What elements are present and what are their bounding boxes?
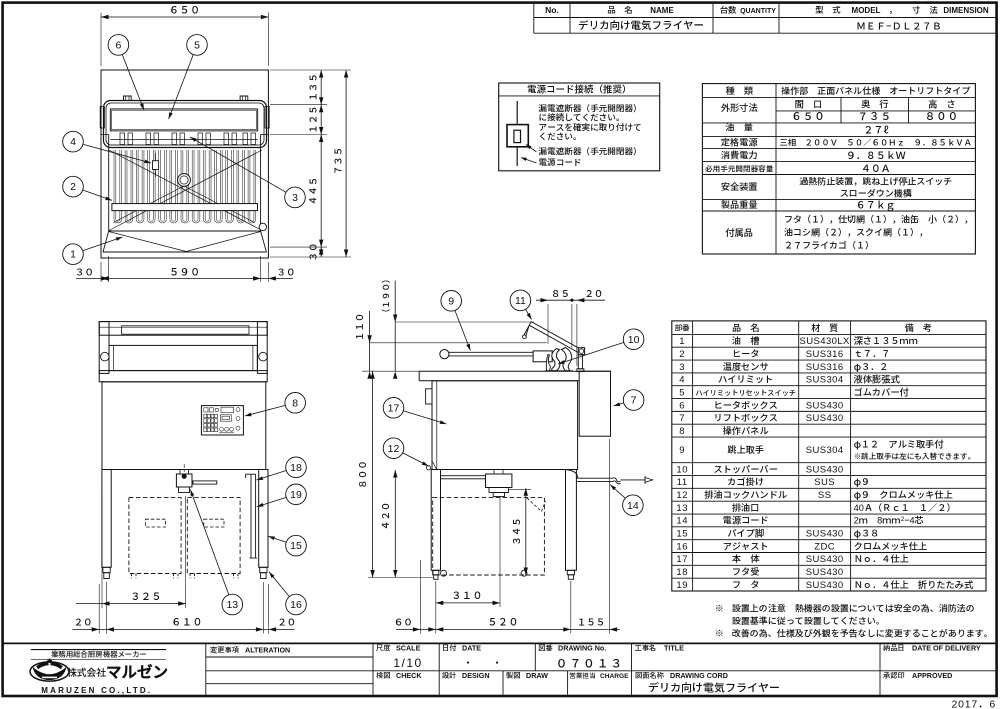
svg-text:※: ※ (715, 602, 724, 615)
svg-text:２０: ２０ (584, 286, 603, 300)
svg-text:DATE: DATE (462, 644, 481, 654)
svg-text:定格電源: 定格電源 (721, 134, 759, 148)
svg-text:DATE OF DELIVERY: DATE OF DELIVERY (912, 644, 981, 654)
svg-text:NAME: NAME (650, 5, 674, 16)
svg-text:検図: 検図 (376, 671, 390, 681)
svg-text:マルゼン: マルゼン (106, 661, 168, 683)
svg-text:６５０: ６５０ (791, 109, 826, 124)
svg-text:SCALE: SCALE (396, 644, 421, 654)
svg-text:13: 13 (226, 597, 238, 612)
svg-text:4: 4 (70, 134, 76, 149)
svg-text:16: 16 (290, 597, 302, 612)
svg-text:・: ・ (492, 656, 501, 669)
svg-text:尺度: 尺度 (376, 644, 390, 654)
svg-text:２０: ２０ (73, 615, 92, 629)
svg-text:寸 法: 寸 法 (912, 4, 938, 16)
svg-text:４２０: ４２０ (378, 502, 392, 531)
svg-text:備 考: 備 考 (905, 321, 932, 334)
svg-text:7: 7 (631, 393, 637, 408)
svg-text:18: 18 (290, 460, 302, 475)
svg-text:品 名: 品 名 (732, 321, 759, 334)
svg-text:12: 12 (388, 441, 400, 456)
svg-text:４４５: ４４５ (306, 177, 320, 206)
svg-text:1: 1 (70, 247, 76, 262)
svg-text:TITLE: TITLE (664, 644, 684, 654)
svg-text:8: 8 (679, 423, 685, 437)
svg-text:部番: 部番 (675, 323, 691, 334)
svg-text:17: 17 (388, 400, 400, 415)
svg-text:CHARGE: CHARGE (600, 670, 629, 680)
svg-text:11: 11 (515, 293, 526, 308)
svg-text:変更事項: 変更事項 (210, 645, 240, 655)
svg-text:８５: ８５ (551, 286, 570, 300)
svg-text:油コシ網（２），スクイ網（１），: 油コシ網（２），スクイ網（１）， (784, 225, 928, 238)
svg-text:5: 5 (194, 38, 200, 53)
svg-text:（１９０）: （１９０） (380, 275, 392, 318)
svg-text:デリカ向け電気フライヤー: デリカ向け電気フライヤー (578, 18, 704, 33)
svg-text:15: 15 (290, 538, 302, 553)
svg-text:２７フライカゴ（１）: ２７フライカゴ（１） (784, 238, 874, 251)
svg-text:６１０: ６１０ (171, 614, 203, 629)
svg-text:５２０: ５２０ (487, 614, 519, 629)
svg-text:付属品: 付属品 (725, 225, 753, 239)
svg-text:営業担当: 営業担当 (569, 670, 596, 680)
svg-text:SUS430: SUS430 (806, 410, 844, 424)
svg-text:9: 9 (679, 442, 685, 456)
svg-text:，: ， (889, 4, 898, 16)
svg-text:※跳上取手は左にも入替できます。: ※跳上取手は左にも入替できます。 (854, 451, 976, 462)
svg-text:ゴムカバー付: ゴムカバー付 (854, 384, 910, 398)
svg-text:MARUZEN CO.,LTD.: MARUZEN CO.,LTD. (41, 685, 152, 696)
svg-text:操作部 正面パネル仕様 オートリフトタイプ: 操作部 正面パネル仕様 オートリフトタイプ (781, 84, 971, 97)
svg-text:SS: SS (818, 487, 831, 501)
svg-text:SUS304: SUS304 (806, 442, 844, 456)
svg-text:1/10: 1/10 (393, 654, 422, 671)
svg-text:MODEL: MODEL (852, 5, 881, 16)
svg-text:０７０１３: ０７０１３ (556, 655, 625, 671)
svg-text:デリカ向け電気フライヤー: デリカ向け電気フライヤー (648, 680, 780, 696)
svg-text:QUANTITY: QUANTITY (740, 6, 776, 16)
svg-text:必用手元開閉器容量: 必用手元開閉器容量 (705, 164, 774, 175)
svg-text:３１０: ３１０ (451, 587, 483, 602)
svg-text:φ１２ アルミ取手付: φ１２ アルミ取手付 (854, 437, 945, 451)
svg-text:2: 2 (70, 179, 76, 194)
svg-text:消費電力: 消費電力 (721, 148, 758, 162)
svg-text:材 質: 材 質 (811, 321, 838, 334)
svg-text:10: 10 (628, 332, 640, 347)
svg-text:６５０: ６５０ (169, 2, 201, 17)
svg-text:１５５: １５５ (577, 615, 606, 629)
svg-text:改善の為、仕様及び外観を予告なしに変更することがあります。: 改善の為、仕様及び外観を予告なしに変更することがあります。 (732, 626, 993, 639)
svg-text:電源コード: 電源コード (539, 156, 582, 168)
svg-text:設置上の注意 熱機器の設置については安全の為、消防法の: 設置上の注意 熱機器の設置については安全の為、消防法の (732, 602, 975, 615)
svg-text:７３５: ７３５ (330, 147, 344, 176)
svg-text:DRAW: DRAW (526, 671, 548, 681)
svg-text:設置基準に従って設置してください。: 設置基準に従って設置してください。 (732, 614, 885, 627)
svg-text:業務用総合厨房機器メーカー: 業務用総合厨房機器メーカー (51, 649, 147, 660)
svg-text:１３５: １３５ (306, 73, 320, 102)
svg-text:Ｎｏ．４仕上 折りたたみ式: Ｎｏ．４仕上 折りたたみ式 (854, 577, 973, 591)
svg-text:3: 3 (292, 190, 298, 205)
svg-text:電源コード接続（推奨）: 電源コード接続（推奨） (527, 82, 632, 96)
svg-text:製図: 製図 (506, 671, 520, 681)
svg-text:承認印: 承認印 (882, 671, 905, 681)
svg-text:8: 8 (292, 395, 298, 410)
svg-text:SUS304: SUS304 (806, 372, 844, 386)
svg-text:２７ℓ: ２７ℓ (863, 122, 888, 137)
svg-text:株式会社: 株式会社 (67, 665, 106, 679)
svg-text:３０: ３０ (306, 242, 320, 261)
svg-text:フ タ: フ タ (732, 577, 760, 591)
svg-text:操作パネル: 操作パネル (723, 423, 770, 437)
svg-text:Ｎｏ．４仕上: Ｎｏ．４仕上 (854, 551, 909, 565)
svg-text:工事名: 工事名 (635, 644, 657, 654)
svg-text:油 量: 油 量 (724, 119, 753, 133)
svg-text:品 名: 品 名 (607, 4, 633, 16)
svg-text:DIMENSION: DIMENSION (943, 5, 989, 16)
svg-text:19: 19 (676, 577, 688, 591)
svg-text:３２５: ３２５ (130, 588, 162, 603)
svg-text:製品重量: 製品重量 (721, 197, 758, 211)
svg-text:納品日: 納品日 (883, 644, 905, 654)
svg-text:跳上取手: 跳上取手 (727, 442, 764, 456)
svg-text:過熱防止装置，跳ね上げ停止スイッチ: 過熱防止装置，跳ね上げ停止スイッチ (798, 175, 952, 188)
svg-text:2017．6: 2017．6 (952, 696, 997, 709)
svg-text:種 類: 種 類 (725, 83, 753, 97)
svg-text:６７ｋｇ: ６７ｋｇ (856, 196, 896, 211)
svg-text:安全装置: 安全装置 (721, 179, 758, 193)
svg-text:ALTERATION: ALTERATION (245, 645, 290, 655)
svg-text:SUS430: SUS430 (806, 577, 844, 591)
svg-text:※: ※ (715, 626, 724, 639)
svg-text:１２５: １２５ (306, 105, 320, 134)
svg-text:6: 6 (115, 38, 121, 53)
svg-text:２０: ２０ (277, 615, 296, 629)
svg-text:５９０: ５９０ (169, 264, 201, 279)
svg-text:・: ・ (463, 656, 472, 669)
svg-text:ください。: ください。 (539, 131, 582, 143)
svg-text:CHECK: CHECK (396, 671, 422, 681)
svg-text:フタ（１），仕切網（１），油缶 小（２），: フタ（１），仕切網（１），油缶 小（２）， (784, 212, 973, 225)
svg-text:APPROVED: APPROVED (912, 671, 952, 681)
svg-text:日付: 日付 (442, 644, 456, 654)
svg-text:３４５: ３４５ (509, 517, 523, 546)
svg-text:８００: ８００ (355, 460, 369, 489)
svg-text:設計: 設計 (442, 671, 456, 681)
svg-text:14: 14 (627, 498, 639, 513)
svg-text:８００: ８００ (925, 109, 960, 124)
svg-text:６０: ６０ (394, 615, 413, 629)
svg-text:１１０: １１０ (352, 313, 366, 342)
svg-text:型 式: 型 式 (814, 4, 841, 16)
svg-text:４０Ａ: ４０Ａ (861, 160, 891, 175)
svg-text:３０: ３０ (276, 265, 295, 279)
svg-text:外形寸法: 外形寸法 (721, 100, 758, 114)
svg-text:台数: 台数 (719, 4, 736, 16)
svg-text:DRAWING No.: DRAWING No. (558, 644, 606, 654)
svg-text:DESIGN: DESIGN (462, 671, 490, 681)
svg-text:ＭＥＦ−ＤＬ２７Ｂ: ＭＥＦ−ＤＬ２７Ｂ (856, 19, 942, 33)
svg-text:No.: No. (545, 4, 559, 16)
svg-text:３０: ３０ (75, 265, 94, 279)
svg-text:図番: 図番 (538, 644, 552, 654)
svg-text:19: 19 (290, 487, 302, 502)
svg-text:ハイリミット: ハイリミット (718, 372, 773, 386)
svg-text:9: 9 (448, 293, 454, 308)
